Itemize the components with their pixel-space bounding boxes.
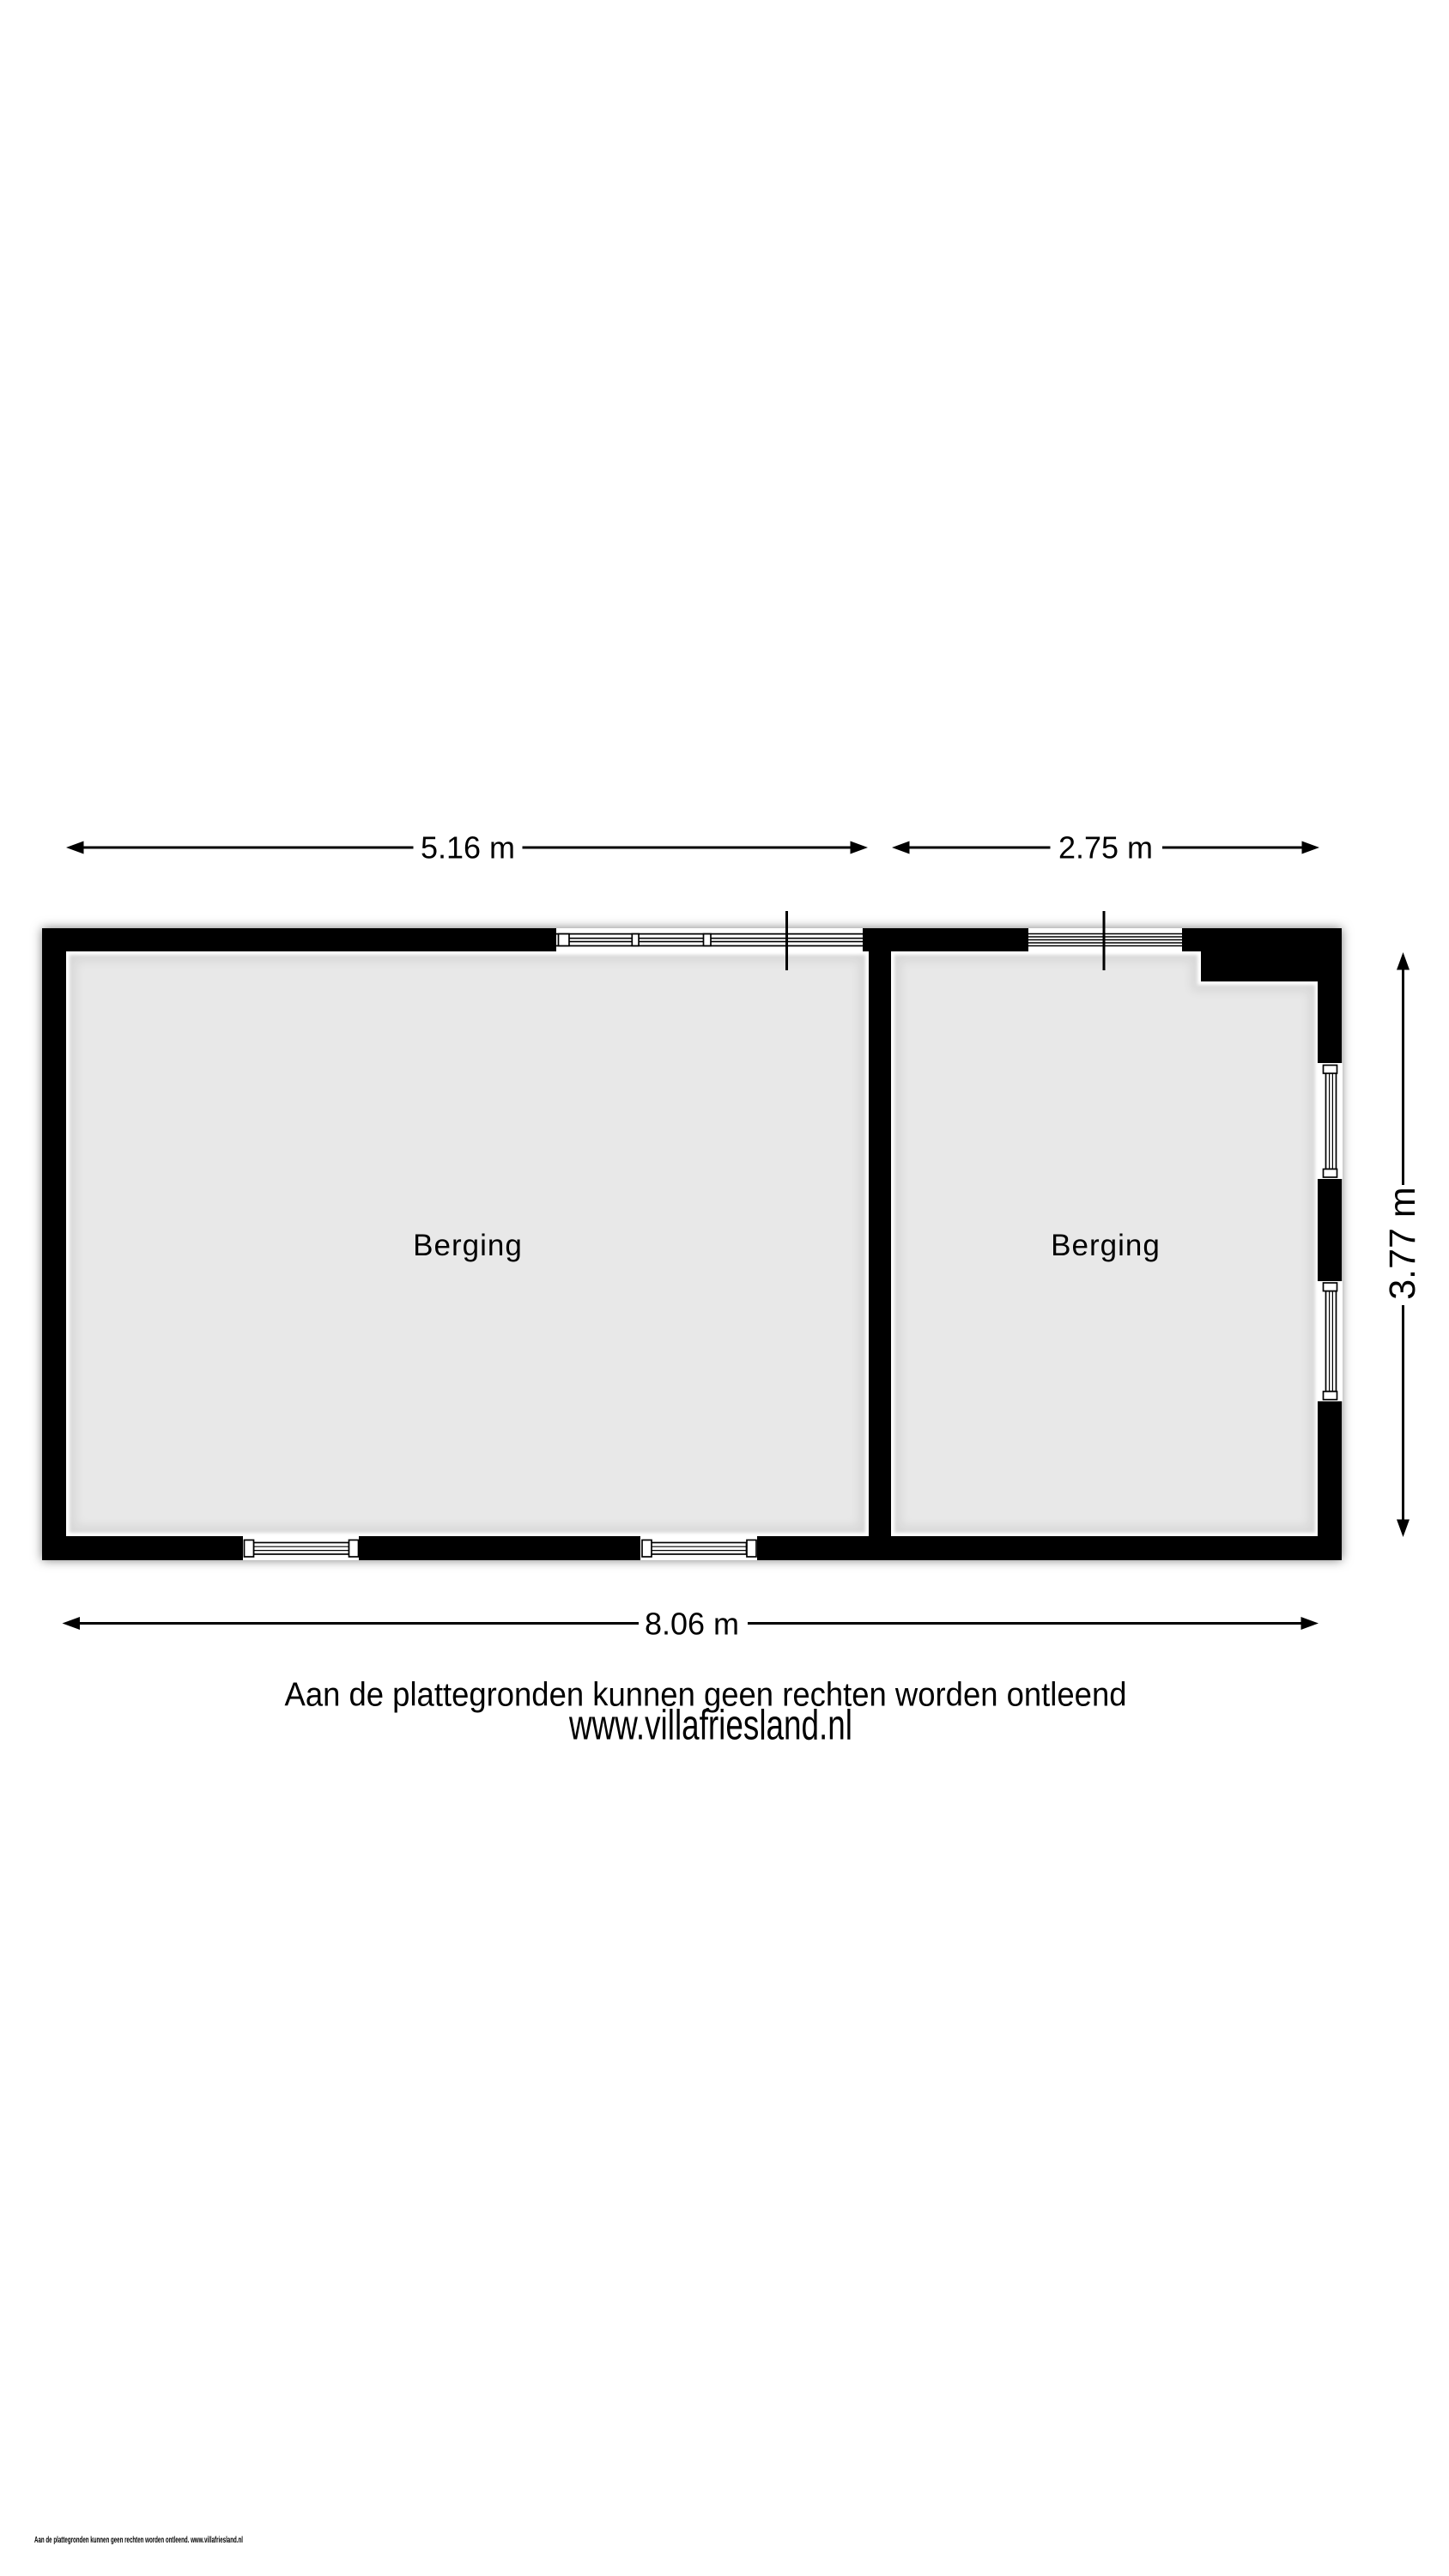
svg-text:8.06 m: 8.06 m [645, 1607, 739, 1642]
svg-text:Berging: Berging [413, 1229, 523, 1262]
svg-text:Aan de plattegronden kunnen ge: Aan de plattegronden kunnen geen rechten… [34, 2536, 243, 2545]
svg-text:3.77 m: 3.77 m [1382, 1187, 1423, 1299]
svg-text:www.villafriesland.nl: www.villafriesland.nl [568, 1703, 852, 1749]
svg-text:5.16 m: 5.16 m [421, 830, 515, 866]
svg-text:2.75 m: 2.75 m [1058, 830, 1153, 866]
svg-text:Berging: Berging [1051, 1229, 1161, 1262]
